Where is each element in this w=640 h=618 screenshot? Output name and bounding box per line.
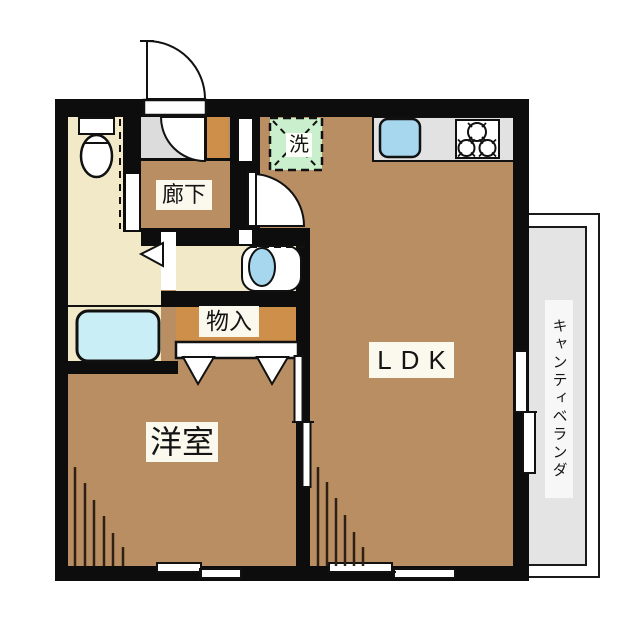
toilet-bowl (81, 135, 112, 177)
bathtub-icon (77, 311, 159, 361)
toilet-tank (79, 118, 114, 134)
window-west-room-1 (157, 563, 201, 572)
wall-washroom-bottom (161, 291, 310, 307)
wall-bath-bottom (55, 361, 178, 374)
window-veranda-1 (515, 351, 527, 412)
window-veranda-2 (523, 412, 535, 473)
entrance-door-leaf (144, 100, 206, 115)
closet-door-track (176, 342, 298, 358)
sliding-door-panel-2 (303, 422, 311, 487)
label-veranda: キャンティベランダ (545, 300, 573, 498)
label-storage: 物入 (199, 306, 259, 337)
shoe-cabinet (207, 117, 228, 158)
toilet-icon (79, 118, 114, 177)
wall-bottom (55, 566, 529, 581)
label-washing-machine: 洗 (285, 132, 313, 158)
hallway-washroom-opening (239, 230, 252, 244)
floor-plan-drawing (0, 0, 640, 618)
toilet-door-opening (126, 174, 139, 230)
window-ldk-1 (329, 563, 392, 572)
entry-step-line (141, 158, 230, 161)
label-ldk: LDK (369, 342, 454, 378)
label-hallway: 廊下 (156, 180, 212, 210)
washbasin-bowl (249, 248, 275, 286)
floor-plan: 廊下 洗 LDK 物入 洋室 キャンティベランダ (0, 0, 640, 618)
kitchen-sink-icon (380, 119, 420, 157)
window-ldk-2 (394, 569, 455, 578)
wall-left (55, 99, 68, 581)
window-west-room-2 (200, 569, 241, 578)
label-western-room: 洋室 (146, 422, 218, 462)
hallway-ldk-door-leaf (248, 172, 256, 226)
washbasin-icon (242, 246, 301, 291)
sliding-door-panel-1 (295, 356, 303, 422)
entry-ldk-opening (239, 119, 252, 161)
wall-right (513, 99, 529, 581)
